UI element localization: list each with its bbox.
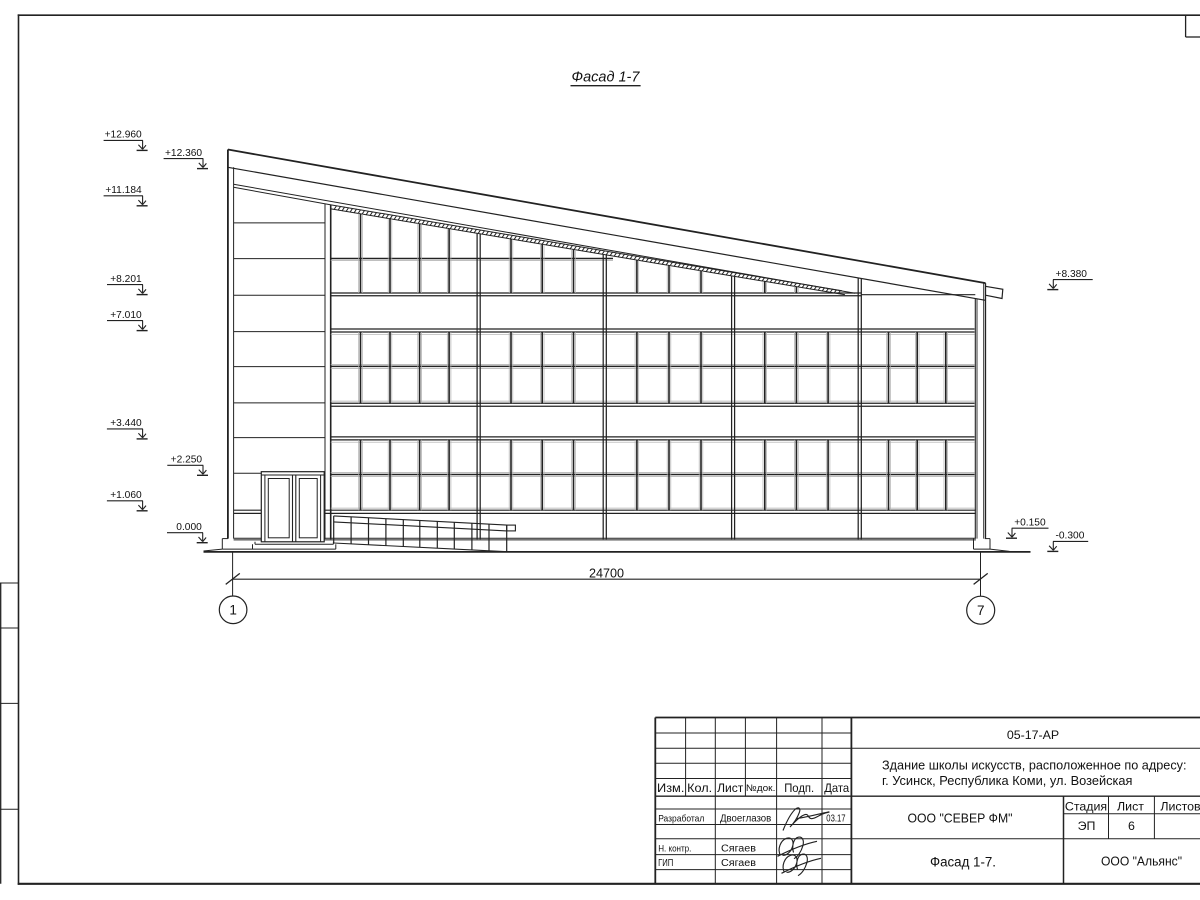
svg-text:Подп.: Подп. [784,781,814,795]
svg-text:+7.010: +7.010 [110,310,142,321]
svg-text:+8.380: +8.380 [1056,269,1088,280]
svg-text:Сягаев: Сягаев [721,844,756,855]
svg-text:+11.184: +11.184 [105,185,142,196]
svg-text:№док.: №док. [746,783,776,794]
svg-text:Листов: Листов [1160,800,1200,814]
svg-text:ЭП: ЭП [1078,819,1096,833]
svg-text:ООО "Альянс": ООО "Альянс" [1101,855,1182,869]
svg-text:+0.150: +0.150 [1014,517,1046,528]
svg-text:Изм.: Изм. [657,781,684,795]
svg-text:0.000: 0.000 [176,522,202,533]
svg-text:+12.360: +12.360 [165,148,202,159]
svg-text:05-17-АР: 05-17-АР [1007,728,1059,742]
svg-text:+1.060: +1.060 [110,490,142,501]
svg-text:г. Усинск, Республика Коми, ул: г. Усинск, Республика Коми, ул. Возейска… [882,773,1133,788]
svg-text:Фасад 1-7.: Фасад 1-7. [930,855,996,870]
svg-text:+2.250: +2.250 [171,455,203,466]
svg-text:24700: 24700 [589,566,624,580]
svg-text:Лист: Лист [717,781,744,795]
svg-text:Кол.: Кол. [687,781,712,795]
svg-text:Стадия: Стадия [1065,800,1107,814]
svg-text:6: 6 [1128,819,1135,833]
svg-text:+3.440: +3.440 [110,418,142,429]
svg-text:Фасад 1-7: Фасад 1-7 [572,70,641,86]
svg-text:1: 1 [229,603,237,618]
svg-text:ООО "СЕВЕР ФМ": ООО "СЕВЕР ФМ" [908,812,1013,826]
svg-text:-0.300: -0.300 [1056,531,1085,542]
svg-text:7: 7 [977,603,985,618]
svg-text:Здание школы искусств, располо: Здание школы искусств, расположенное по … [882,757,1187,772]
svg-text:Двоеглазов: Двоеглазов [720,814,771,825]
svg-text:+12.960: +12.960 [105,130,142,141]
svg-text:ГИП: ГИП [658,858,673,869]
svg-text:Н. контр.: Н. контр. [658,844,691,855]
svg-text:+8.201: +8.201 [110,274,142,285]
svg-text:Лист: Лист [1117,800,1144,814]
svg-text:03.17: 03.17 [826,814,845,825]
svg-text:Разработал: Разработал [658,814,704,825]
svg-text:Сягаев: Сягаев [721,858,756,869]
svg-text:Дата: Дата [824,781,849,795]
